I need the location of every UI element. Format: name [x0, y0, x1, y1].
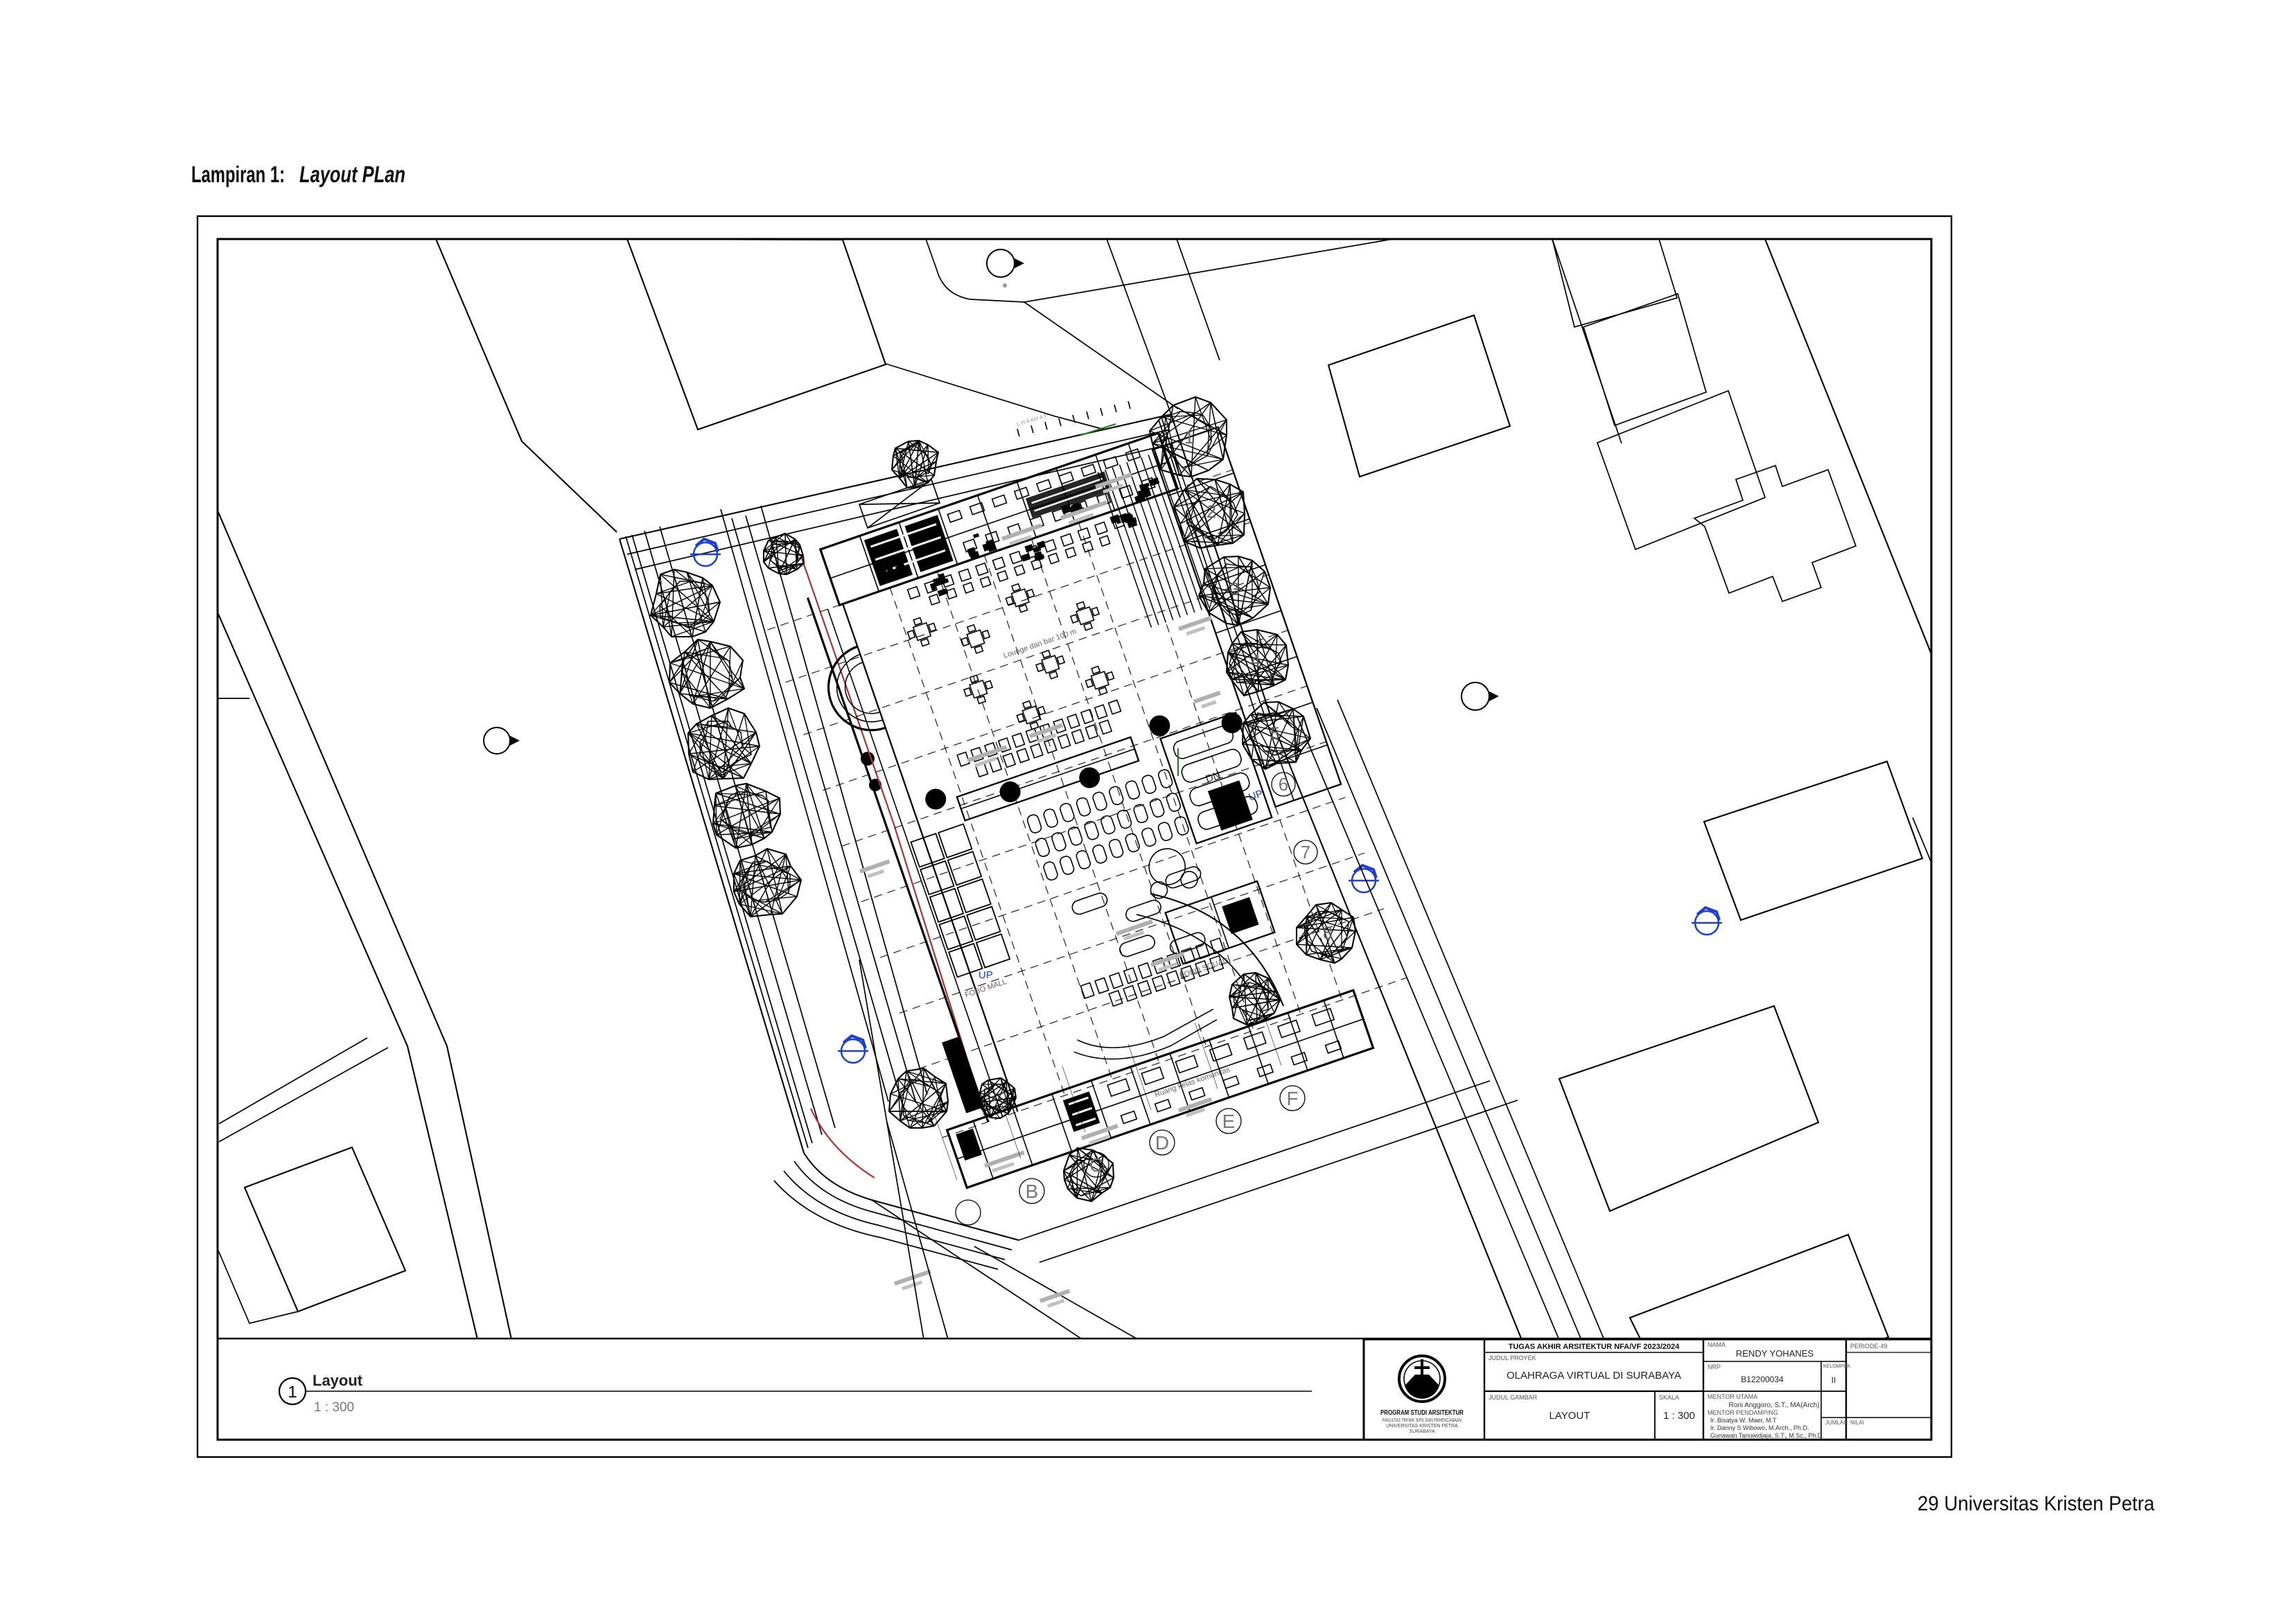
- svg-text:FAKULTAS TEKNIK SIPIL DAN PERE: FAKULTAS TEKNIK SIPIL DAN PERENCANAAN: [1382, 1418, 1461, 1423]
- svg-text:Ir. Bisatya W. Maer, M.T: Ir. Bisatya W. Maer, M.T: [1710, 1417, 1777, 1424]
- svg-text:3: 3: [1230, 580, 1240, 599]
- svg-text:TUGAS AKHIR ARSITEKTUR NFA/VF: TUGAS AKHIR ARSITEKTUR NFA/VF 2023/2024: [1509, 1343, 1680, 1351]
- svg-text:MENTOR UTAMA: MENTOR UTAMA: [1708, 1393, 1757, 1400]
- svg-text:B12200034: B12200034: [1741, 1375, 1784, 1384]
- svg-text:UNIVERSITAS KRISTEN PETRA: UNIVERSITAS KRISTEN PETRA: [1386, 1424, 1458, 1429]
- svg-text:F: F: [1286, 1088, 1298, 1109]
- svg-text:6: 6: [1279, 774, 1288, 795]
- svg-text:D: D: [1155, 1132, 1169, 1154]
- svg-text:4: 4: [1251, 651, 1261, 671]
- svg-text:JUDUL PROYEK: JUDUL PROYEK: [1489, 1354, 1536, 1361]
- svg-text:Gunawan Tanuwidjaja, S.T., M.S: Gunawan Tanuwidjaja, S.T., M.Sc., Ph.D: [1710, 1432, 1823, 1439]
- svg-text:Lampiran 1:: Lampiran 1:: [191, 161, 285, 187]
- svg-text:II: II: [1832, 1375, 1836, 1385]
- svg-text:NRP: NRP: [1708, 1363, 1721, 1370]
- svg-text:7: 7: [1301, 842, 1310, 863]
- svg-text:RENDY YOHANES: RENDY YOHANES: [1736, 1348, 1814, 1359]
- svg-text:1 : 300: 1 : 300: [314, 1400, 354, 1415]
- svg-text:SURABAYA: SURABAYA: [1409, 1429, 1434, 1434]
- svg-text:1 : 300: 1 : 300: [1663, 1410, 1695, 1422]
- svg-text:1: 1: [288, 1383, 297, 1402]
- svg-text:JUDUL GAMBAR: JUDUL GAMBAR: [1489, 1394, 1538, 1401]
- svg-text:KELOMPOK: KELOMPOK: [1823, 1364, 1851, 1369]
- svg-text:Roni Anggoro, S.T., MA(Arch): Roni Anggoro, S.T., MA(Arch): [1728, 1402, 1819, 1409]
- svg-text:Layout: Layout: [313, 1372, 363, 1389]
- svg-text:Ir. Danny S Wibowo, M.Arch., P: Ir. Danny S Wibowo, M.Arch., Ph.D.: [1710, 1424, 1809, 1431]
- svg-text:2: 2: [1206, 502, 1216, 522]
- svg-text:LAYOUT: LAYOUT: [1550, 1410, 1590, 1422]
- svg-text:JUMLAH: JUMLAH: [1825, 1420, 1847, 1426]
- svg-text:1: 1: [1184, 428, 1194, 448]
- svg-text:NAMA: NAMA: [1708, 1341, 1726, 1348]
- svg-text:B: B: [1026, 1181, 1039, 1202]
- svg-text:E: E: [1222, 1111, 1236, 1132]
- svg-text:UP: UP: [978, 969, 993, 981]
- svg-text:29 Universitas Kristen Petra: 29 Universitas Kristen Petra: [1917, 1492, 2154, 1515]
- svg-text:C: C: [1089, 1154, 1103, 1176]
- svg-text:8: 8: [1323, 924, 1333, 943]
- svg-text:PROGRAM STUDI ARSITEKTUR: PROGRAM STUDI ARSITEKTUR: [1380, 1409, 1464, 1417]
- svg-text:5: 5: [1270, 724, 1280, 743]
- svg-text:PERIODE-49: PERIODE-49: [1850, 1343, 1888, 1350]
- svg-text:NILAI: NILAI: [1850, 1420, 1864, 1426]
- svg-text:OLAHRAGA VIRTUAL DI SURABAYA: OLAHRAGA VIRTUAL DI SURABAYA: [1507, 1370, 1681, 1382]
- svg-text:SKALA: SKALA: [1659, 1394, 1679, 1401]
- svg-text:Layout PLan: Layout PLan: [299, 161, 405, 187]
- svg-text:MENTOR PENDAMPING: MENTOR PENDAMPING: [1708, 1409, 1778, 1416]
